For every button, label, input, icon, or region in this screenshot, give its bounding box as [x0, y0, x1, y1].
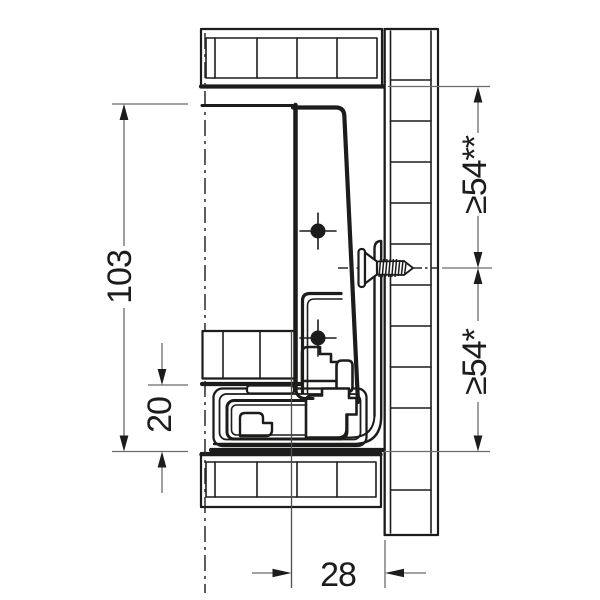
- dimension-103-label: 103: [101, 250, 139, 304]
- dimension-20-label: 20: [141, 397, 179, 433]
- drawing-svg: 103 20 ≥54** ≥54* 28: [0, 0, 600, 600]
- dimension-54-lower-label: ≥54*: [456, 328, 494, 394]
- cabinet-top-panel: [201, 29, 385, 87]
- dimension-54-lower: ≥54*: [456, 268, 494, 452]
- dimension-103: 103: [101, 104, 139, 452]
- bottom-clamp-tab: [247, 386, 294, 394]
- fixing-hole-upper: [300, 213, 336, 249]
- cabinet-side-panel: [385, 29, 438, 535]
- dimension-28-label: 28: [320, 556, 356, 594]
- dimension-54-upper-label: ≥54**: [456, 135, 494, 214]
- dimension-28: 28: [252, 556, 426, 594]
- dimension-20: 20: [141, 343, 179, 493]
- dimension-54-upper: ≥54**: [456, 87, 494, 269]
- technical-drawing-canvas: 103 20 ≥54** ≥54* 28: [0, 0, 600, 600]
- drawer-bottom-panel: [202, 331, 301, 394]
